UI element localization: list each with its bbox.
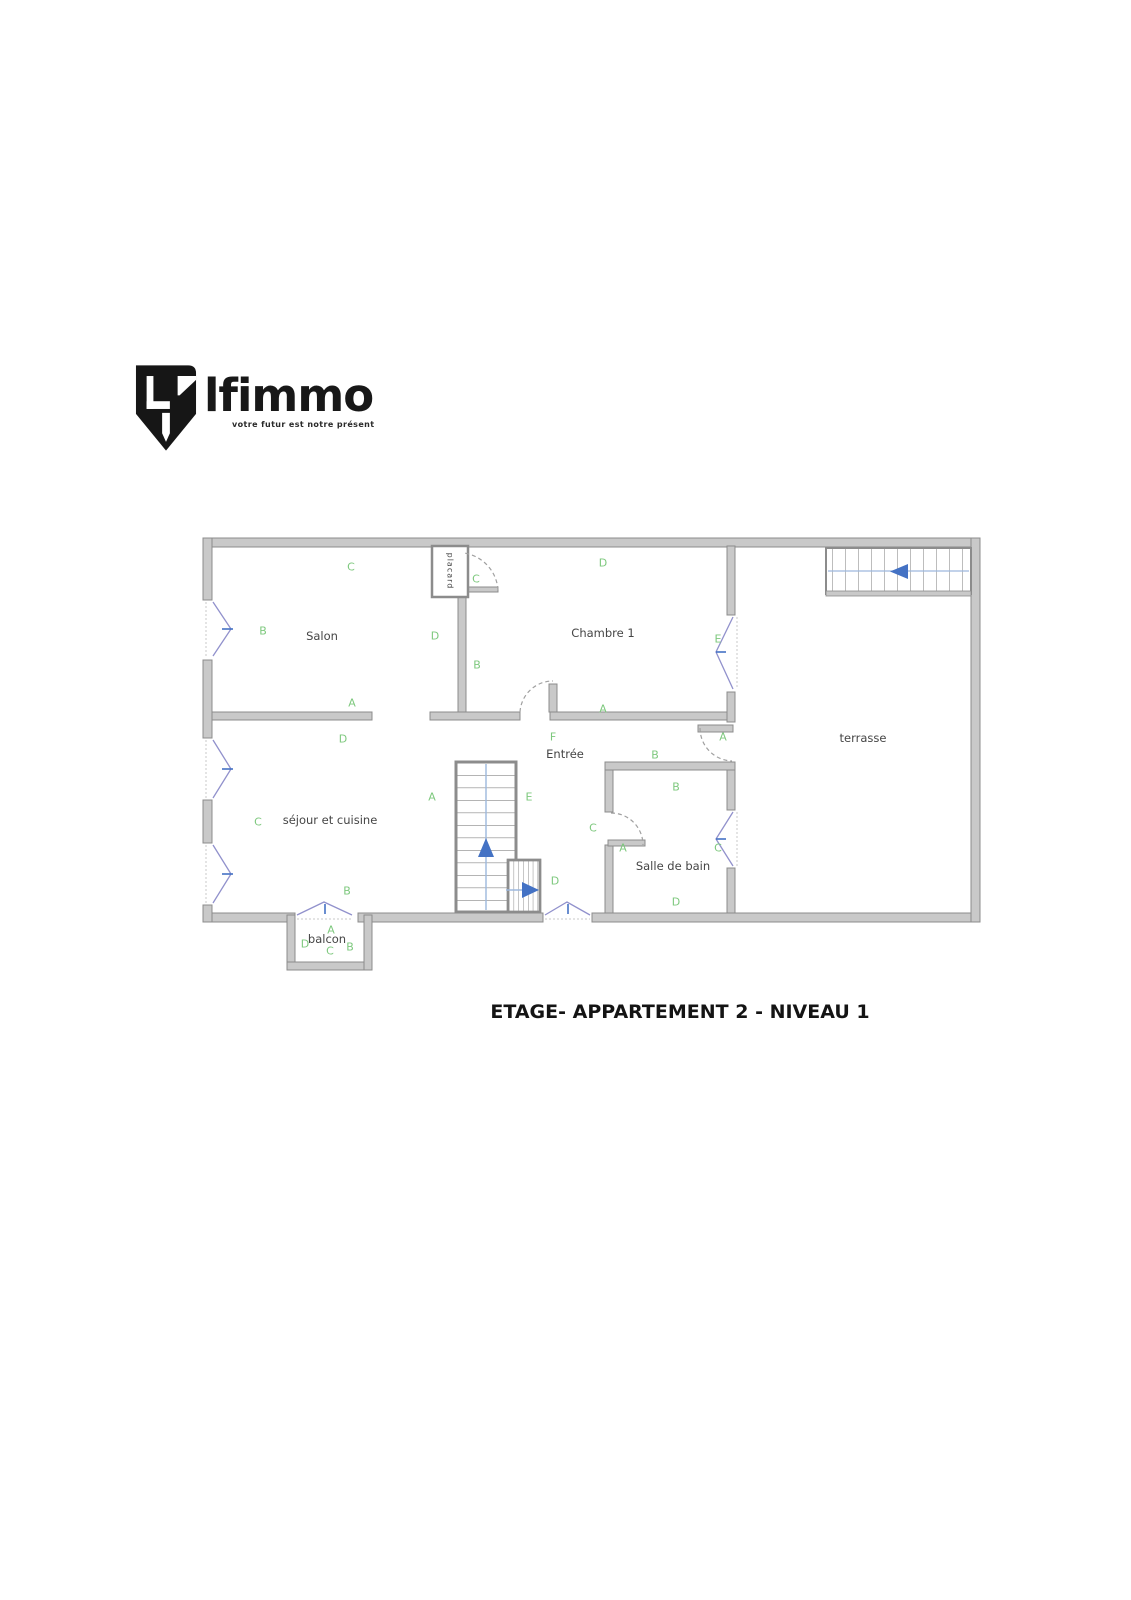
outer-walls [203,538,980,970]
page: lfimmo votre futur est notre présent [0,0,1131,1600]
chambre-window-icon [716,617,733,689]
terrace-stairs [826,548,971,596]
plan-caption: ETAGE- APPARTEMENT 2 - NIVEAU 1 [490,1001,869,1023]
floor-plan [0,0,1131,1600]
closet-box [432,546,468,597]
main-staircase [456,762,540,912]
